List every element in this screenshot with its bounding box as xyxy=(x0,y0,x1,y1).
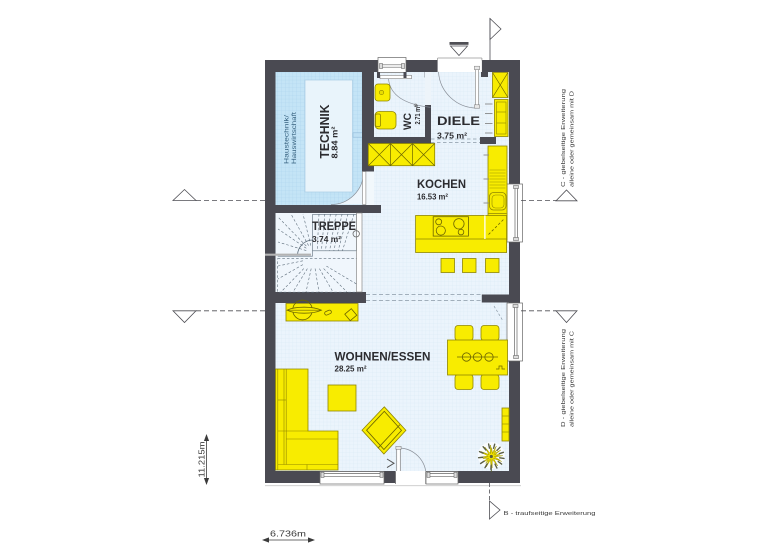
svg-text:11.215m: 11.215m xyxy=(197,442,207,478)
svg-text:8.84 m²: 8.84 m² xyxy=(331,126,340,158)
svg-text:D - giebelseitige Erweiterung: D - giebelseitige Erweiterung xyxy=(561,329,567,427)
svg-text:3.75 m²: 3.75 m² xyxy=(437,132,467,141)
svg-text:Haustechnik/: Haustechnik/ xyxy=(284,115,291,164)
svg-text:KOCHEN: KOCHEN xyxy=(417,177,466,191)
svg-text:Hauswirtschaft: Hauswirtschaft xyxy=(291,112,298,164)
svg-text:C - giebelseitige Erweiterung: C - giebelseitige Erweiterung xyxy=(561,89,567,187)
svg-text:6.736m: 6.736m xyxy=(270,529,306,539)
svg-text:alleine oder gemeinsam mit C: alleine oder gemeinsam mit C xyxy=(570,331,576,427)
svg-text:TREPPE: TREPPE xyxy=(312,219,356,233)
svg-text:3.74 m²: 3.74 m² xyxy=(312,235,341,244)
svg-text:28.25 m²: 28.25 m² xyxy=(335,365,367,374)
svg-text:B - traufseitige Erweiterung: B - traufseitige Erweiterung xyxy=(504,511,596,517)
svg-text:WOHNEN/ESSEN: WOHNEN/ESSEN xyxy=(335,350,431,364)
svg-text:2.71 m²: 2.71 m² xyxy=(413,105,422,125)
svg-text:DIELE: DIELE xyxy=(437,114,480,128)
svg-text:alleine oder gemeinsam mit D: alleine oder gemeinsam mit D xyxy=(570,91,576,187)
svg-text:16.53 m²: 16.53 m² xyxy=(417,193,448,202)
